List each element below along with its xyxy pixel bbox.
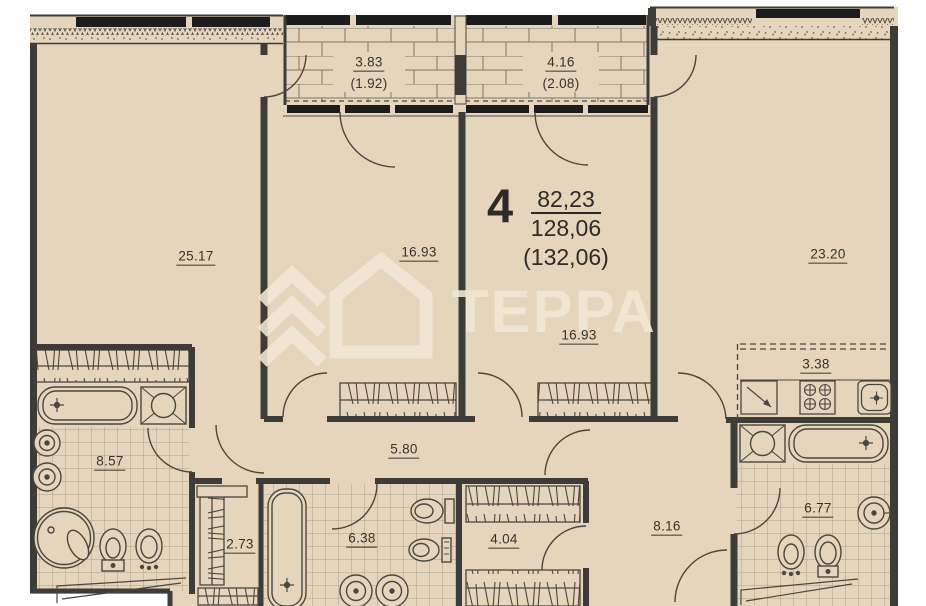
window [76,17,186,27]
area-label-bathroom-middle: 6.38 [346,531,377,548]
total-area-value: 128,06 [531,212,601,241]
area-label-bedroom-middle-left: 16.93 [399,245,438,262]
apartment-number: 4 [487,186,512,226]
area-label-wardrobe: 4.04 [488,532,519,549]
living-area-value: 82,23 [537,186,595,212]
apartment-summary: 4 82,23 128,06 (132,06) [487,186,609,270]
reduced-area-label-balcony-left: (1.92) [350,76,387,91]
area-label-balcony-left: 3.83 [353,55,384,72]
stove-icon [800,381,835,414]
floor-plan: ТЕРРА 3.83 (1.92) 4.16 (2.08) 25.17 16.9… [0,0,926,606]
area-label-living-room-left: 25.17 [176,249,215,266]
window [192,17,270,27]
total-area-with-balcony-value: (132,06) [523,244,609,270]
floor-plan-canvas: ТЕРРА [0,0,926,606]
window [756,9,860,18]
area-label-living-room-right: 23.20 [808,247,847,264]
window [356,15,451,25]
area-label-bedroom-middle-right: 16.93 [559,328,598,345]
window [286,15,350,25]
area-label-bathroom-right: 6.77 [802,501,833,518]
area-label-balcony-right: 4.16 [545,55,576,72]
area-label-corridor: 5.80 [388,442,419,459]
reduced-area-label-balcony-right: (2.08) [542,76,579,91]
area-label-kitchen-niche: 3.38 [800,357,831,374]
area-label-closet: 2.73 [224,537,255,554]
window [466,15,552,25]
kitchen-fixtures [740,380,891,414]
area-label-bathroom-left: 8.57 [94,454,125,471]
watermark-text: ТЕРРА [452,278,657,345]
window [558,15,646,25]
area-label-hall: 8.16 [651,519,682,536]
